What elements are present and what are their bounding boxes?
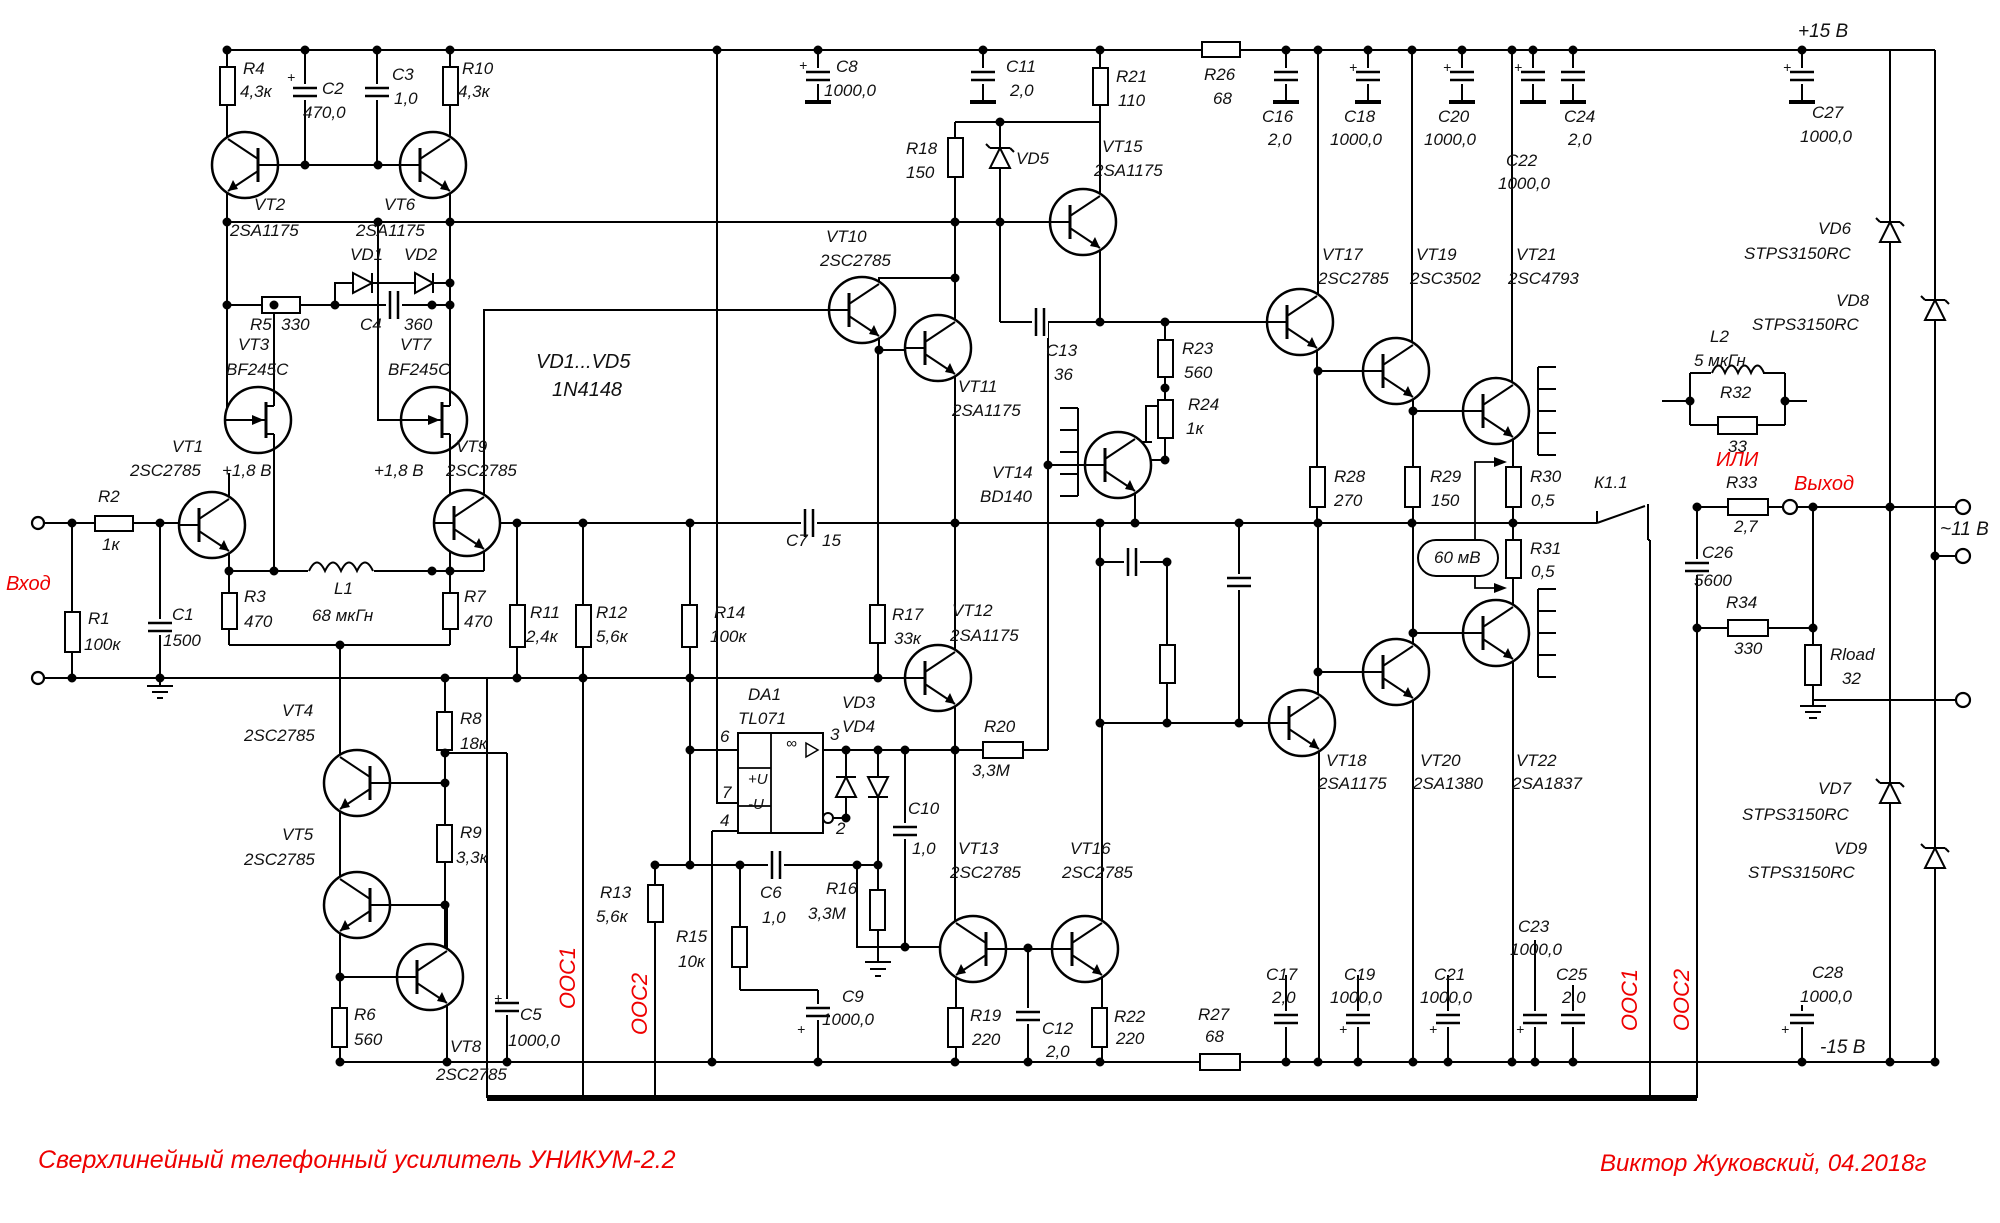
label-ООС2: ООС2 xyxy=(1671,969,1693,1031)
label-100к: 100к xyxy=(84,636,120,653)
label-VT5: VT5 xyxy=(282,826,313,843)
label-C21: C21 xyxy=(1434,966,1465,983)
label-VT18: VT18 xyxy=(1326,752,1367,769)
label-33к: 33к xyxy=(894,630,921,647)
label-R10: R10 xyxy=(462,60,493,77)
label-1к: 1к xyxy=(102,536,119,553)
label-2SA1175: 2SA1175 xyxy=(950,627,1019,644)
label-270: 270 xyxy=(1334,492,1362,509)
label-2,4к: 2,4к xyxy=(526,628,558,645)
label-+: + xyxy=(797,1022,805,1036)
label-C13: C13 xyxy=(1046,342,1077,359)
label-2SA1175: 2SA1175 xyxy=(1318,775,1387,792)
label-+: + xyxy=(494,991,502,1005)
label-VT8: VT8 xyxy=(450,1038,481,1055)
label-VT14: VT14 xyxy=(992,464,1033,481)
label-R31: R31 xyxy=(1530,540,1561,557)
label-BD140: BD140 xyxy=(980,488,1032,505)
label-VD5: VD5 xyxy=(1016,150,1049,167)
label-VT11: VT11 xyxy=(958,378,997,395)
label-R15: R15 xyxy=(676,928,707,945)
label-C9: C9 xyxy=(842,988,864,1005)
label-BF245C: BF245C xyxy=(226,361,288,378)
label-C22: C22 xyxy=(1506,152,1537,169)
label-VT3: VT3 xyxy=(238,336,269,353)
label-STPS3150RC: STPS3150RC xyxy=(1744,245,1851,262)
label-470: 470 xyxy=(464,613,492,630)
label-5-мкГн: 5 мкГн xyxy=(1694,352,1746,369)
label-ИЛИ: ИЛИ xyxy=(1716,450,1758,470)
label-2SC2785: 2SC2785 xyxy=(244,727,315,744)
label-18к: 18к xyxy=(460,735,487,752)
label-L1: L1 xyxy=(334,580,353,597)
label-1000,0: 1000,0 xyxy=(1800,128,1852,145)
label-2SA1380: 2SA1380 xyxy=(1413,775,1483,792)
label-2SA1175: 2SA1175 xyxy=(952,402,1021,419)
label-VT6: VT6 xyxy=(384,196,415,213)
label-2SA1175: 2SA1175 xyxy=(1094,162,1163,179)
label-R5-330: R5 330 xyxy=(250,316,310,333)
label-C5: C5 xyxy=(520,1006,542,1023)
label--U: -U xyxy=(748,797,764,812)
label-R16: R16 xyxy=(826,880,857,897)
label-STPS3150RC: STPS3150RC xyxy=(1752,316,1859,333)
label-VT15: VT15 xyxy=(1102,138,1143,155)
label-R19: R19 xyxy=(970,1007,1001,1024)
label-2,7: 2,7 xyxy=(1734,518,1758,535)
label-Rload: Rload xyxy=(1830,646,1874,663)
label-2SC3502: 2SC3502 xyxy=(1410,270,1481,287)
label-7: 7 xyxy=(722,784,731,801)
label-3,3М: 3,3М xyxy=(972,762,1010,779)
label-2SA1175: 2SA1175 xyxy=(230,222,299,239)
label-VT4: VT4 xyxy=(282,702,313,719)
label-0,5: 0,5 xyxy=(1531,492,1555,509)
label-150: 150 xyxy=(906,164,934,181)
label-C17: C17 xyxy=(1266,966,1297,983)
label-1к: 1к xyxy=(1186,420,1203,437)
label-2,0: 2,0 xyxy=(1268,131,1292,148)
label-R34: R34 xyxy=(1726,594,1757,611)
label-4,3к: 4,3к xyxy=(458,83,490,100)
label-5,6к: 5,6к xyxy=(596,628,628,645)
label-R27: R27 xyxy=(1198,1006,1229,1023)
label-3,3к: 3,3к xyxy=(456,849,488,866)
label-VT19: VT19 xyxy=(1416,246,1457,263)
label-R14: R14 xyxy=(714,604,745,621)
label-R30: R30 xyxy=(1530,468,1561,485)
label-VT12: VT12 xyxy=(952,602,993,619)
label-VD6: VD6 xyxy=(1818,220,1851,237)
label-32: 32 xyxy=(1842,670,1861,687)
label-R22: R22 xyxy=(1114,1008,1145,1025)
label-1,0: 1,0 xyxy=(394,90,418,107)
label-+: + xyxy=(1429,1022,1437,1036)
label-4,3к: 4,3к xyxy=(240,83,272,100)
label-C28: C28 xyxy=(1812,964,1843,981)
label-R1: R1 xyxy=(88,610,110,627)
label-R18: R18 xyxy=(906,140,937,157)
label-R13: R13 xyxy=(600,884,631,901)
label-VT17: VT17 xyxy=(1322,246,1363,263)
label-VT21: VT21 xyxy=(1516,246,1557,263)
label-3,3М: 3,3М xyxy=(808,905,846,922)
label-Выход: Выход xyxy=(1794,474,1854,494)
label-2SC2785: 2SC2785 xyxy=(1318,270,1389,287)
label-R33: R33 xyxy=(1726,474,1757,491)
label-5600: 5600 xyxy=(1694,572,1732,589)
label-C2: C2 xyxy=(322,80,344,97)
label-68-мкГн: 68 мкГн xyxy=(312,607,373,624)
label-ООС1: ООС1 xyxy=(1619,969,1641,1031)
label-C6: C6 xyxy=(760,884,782,901)
label-R11: R11 xyxy=(530,604,560,621)
label-STPS3150RC: STPS3150RC xyxy=(1748,864,1855,881)
label-220: 220 xyxy=(1116,1030,1144,1047)
label-VD1: VD1 xyxy=(350,246,383,263)
label-2,0: 2,0 xyxy=(1568,131,1592,148)
label-2,0: 2,0 xyxy=(1562,989,1586,1006)
label-2SC2785: 2SC2785 xyxy=(820,252,891,269)
label-R24: R24 xyxy=(1188,396,1219,413)
label-~11-В: ~11 В xyxy=(1940,520,1989,539)
label-2SA1837: 2SA1837 xyxy=(1512,775,1582,792)
label-C25: C25 xyxy=(1556,966,1587,983)
label-VT2: VT2 xyxy=(254,196,285,213)
label-36: 36 xyxy=(1054,366,1073,383)
label-2SC2785: 2SC2785 xyxy=(446,462,517,479)
label-2SA1175: 2SA1175 xyxy=(356,222,425,239)
label-VT9: VT9 xyxy=(456,438,487,455)
label-К1.1: К1.1 xyxy=(1594,474,1628,491)
label-+15-В: +15 В xyxy=(1798,22,1848,41)
label-R4: R4 xyxy=(243,60,265,77)
label-2SC2785: 2SC2785 xyxy=(130,462,201,479)
label-R32: R32 xyxy=(1720,384,1751,401)
label-R20: R20 xyxy=(984,718,1015,735)
label-VT16: VT16 xyxy=(1070,840,1111,857)
label-2SC2785: 2SC2785 xyxy=(1062,864,1133,881)
label-1000,0: 1000,0 xyxy=(508,1032,560,1049)
label-C4: C4 xyxy=(360,316,382,333)
schematic-page: R44,3кC2470,0C31,0R104,3кVT22SA1175VT62S… xyxy=(0,0,2000,1223)
label-R29: R29 xyxy=(1430,468,1461,485)
label-68: 68 xyxy=(1205,1028,1224,1045)
label-VT22: VT22 xyxy=(1516,752,1557,769)
label-+: + xyxy=(1443,60,1451,74)
label-R17: R17 xyxy=(892,606,923,623)
schematic-author: Виктор Жуковский, 04.2018г xyxy=(1600,1150,1926,1178)
label-VD2: VD2 xyxy=(404,246,437,263)
label-BF245C: BF245C xyxy=(388,361,450,378)
label-330: 330 xyxy=(1734,640,1762,657)
label-R3: R3 xyxy=(244,588,266,605)
label-ООС2: ООС2 xyxy=(629,973,651,1035)
label--: ∞ xyxy=(786,736,797,751)
label-1500: 1500 xyxy=(163,632,201,649)
label-+1,8-В: +1,8 В xyxy=(222,462,272,479)
label-VT1: VT1 xyxy=(172,438,203,455)
label-C12: C12 xyxy=(1042,1020,1073,1037)
label-1000,0: 1000,0 xyxy=(1498,175,1550,192)
label-15: 15 xyxy=(822,532,841,549)
label-VD1...VD5: VD1...VD5 xyxy=(536,352,630,372)
label-1000,0: 1000,0 xyxy=(1330,131,1382,148)
label-VT7: VT7 xyxy=(400,336,431,353)
label-+U: +U xyxy=(748,772,768,787)
label-0,5: 0,5 xyxy=(1531,563,1555,580)
label-2,0: 2,0 xyxy=(1046,1043,1070,1060)
label-Вход: Вход xyxy=(6,574,51,594)
label-1000,0: 1000,0 xyxy=(1510,941,1562,958)
label-1000,0: 1000,0 xyxy=(822,1011,874,1028)
label-1000,0: 1000,0 xyxy=(1800,988,1852,1005)
label-R6: R6 xyxy=(354,1006,376,1023)
label-2SC2785: 2SC2785 xyxy=(244,851,315,868)
label--15-В: -15 В xyxy=(1820,1038,1865,1057)
label-R21: R21 xyxy=(1116,68,1147,85)
label-4: 4 xyxy=(720,812,729,829)
label-ООС1: ООС1 xyxy=(557,947,579,1009)
label-3: 3 xyxy=(830,726,839,743)
label-DA1: DA1 xyxy=(748,686,781,703)
label-VD8: VD8 xyxy=(1836,292,1869,309)
label-R9: R9 xyxy=(460,824,482,841)
label-+: + xyxy=(287,70,295,84)
label-layer: R44,3кC2470,0C31,0R104,3кVT22SA1175VT62S… xyxy=(0,0,2000,1223)
label-1000,0: 1000,0 xyxy=(1424,131,1476,148)
label-R2: R2 xyxy=(98,488,120,505)
label-C16: C16 xyxy=(1262,108,1293,125)
label-100к: 100к xyxy=(710,628,746,645)
label-+: + xyxy=(799,58,807,72)
label-VD3: VD3 xyxy=(842,694,875,711)
label-+: + xyxy=(1514,60,1522,74)
label-C10: C10 xyxy=(908,800,939,817)
label-+: + xyxy=(1781,1022,1789,1036)
label-+1,8-В: +1,8 В xyxy=(374,462,424,479)
label-C7: C7 xyxy=(786,532,808,549)
label-1000,0: 1000,0 xyxy=(1330,989,1382,1006)
label-+: + xyxy=(1516,1022,1524,1036)
label-C8: C8 xyxy=(836,58,858,75)
label-1,0: 1,0 xyxy=(762,909,786,926)
label-R23: R23 xyxy=(1182,340,1213,357)
label-TL071: TL071 xyxy=(738,710,786,727)
label-C19: C19 xyxy=(1344,966,1375,983)
label-L2: L2 xyxy=(1710,328,1729,345)
label-560: 560 xyxy=(354,1031,382,1048)
label-110: 110 xyxy=(1118,92,1145,109)
label-+: + xyxy=(1349,60,1357,74)
label-10к: 10к xyxy=(678,953,705,970)
label-2SC4793: 2SC4793 xyxy=(1508,270,1579,287)
schematic-title: Сверхлинейный телефонный усилитель УНИКУ… xyxy=(38,1146,676,1175)
label-VD9: VD9 xyxy=(1834,840,1867,857)
label-1000,0: 1000,0 xyxy=(1420,989,1472,1006)
label-R8: R8 xyxy=(460,710,482,727)
label-2SC2785: 2SC2785 xyxy=(436,1066,507,1083)
label-VT10: VT10 xyxy=(826,228,867,245)
label-220: 220 xyxy=(972,1031,1000,1048)
label-STPS3150RC: STPS3150RC xyxy=(1742,806,1849,823)
label-470,0: 470,0 xyxy=(303,104,346,121)
label-C3: C3 xyxy=(392,66,414,83)
label-R26: R26 xyxy=(1204,66,1235,83)
label-+: + xyxy=(1339,1022,1347,1036)
label-C18: C18 xyxy=(1344,108,1375,125)
label-2SC2785: 2SC2785 xyxy=(950,864,1021,881)
label-+: + xyxy=(1783,60,1791,74)
label-C26: C26 xyxy=(1702,544,1733,561)
label-R28: R28 xyxy=(1334,468,1365,485)
label-150: 150 xyxy=(1431,492,1459,509)
label-2,0: 2,0 xyxy=(1272,989,1296,1006)
label-1,0: 1,0 xyxy=(912,840,936,857)
label-5,6к: 5,6к xyxy=(596,908,628,925)
label-C1: C1 xyxy=(172,606,194,623)
label-470: 470 xyxy=(244,613,272,630)
label-VD7: VD7 xyxy=(1818,780,1851,797)
label-VT20: VT20 xyxy=(1420,752,1461,769)
label-C11: C11 xyxy=(1006,58,1036,75)
label-VT13: VT13 xyxy=(958,840,999,857)
label-1000,0: 1000,0 xyxy=(824,82,876,99)
label-68: 68 xyxy=(1213,90,1232,107)
label-360: 360 xyxy=(404,316,432,333)
label-2,0: 2,0 xyxy=(1010,82,1034,99)
label-C27: C27 xyxy=(1812,104,1843,121)
label-1N4148: 1N4148 xyxy=(552,380,622,400)
label-560: 560 xyxy=(1184,364,1212,381)
label-C20: C20 xyxy=(1438,108,1469,125)
label-2: 2 xyxy=(836,820,845,837)
label-R12: R12 xyxy=(596,604,627,621)
label-C24: C24 xyxy=(1564,108,1595,125)
label-6: 6 xyxy=(720,728,729,745)
label-C23: C23 xyxy=(1518,918,1549,935)
label-60-мВ: 60 мВ xyxy=(1434,549,1481,566)
label-R7: R7 xyxy=(464,588,486,605)
label-VD4: VD4 xyxy=(842,718,875,735)
